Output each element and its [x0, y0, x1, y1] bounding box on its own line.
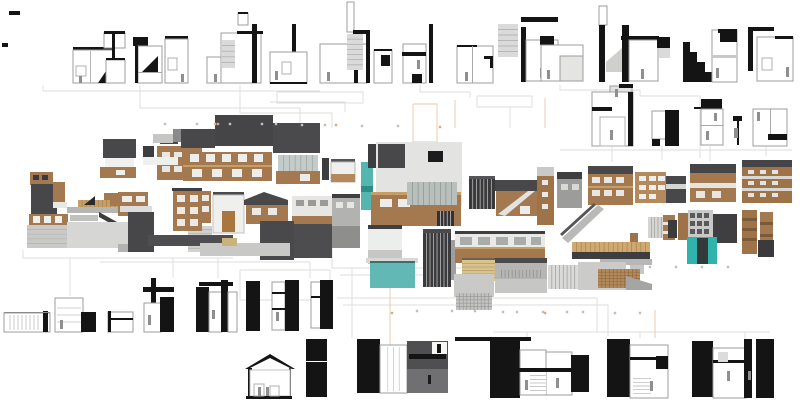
band-left-cluster — [27, 172, 69, 248]
right-row-section-04 — [733, 116, 742, 145]
right-row-section-02 — [652, 110, 679, 146]
band-center-small — [322, 158, 355, 182]
band-cl-right-building — [332, 194, 360, 248]
right-row-section-01 — [592, 84, 633, 146]
top-section-09 — [457, 45, 493, 83]
bottom-right-section — [692, 339, 774, 398]
band-center-tall — [273, 123, 320, 184]
band-right-row2 — [635, 172, 686, 203]
band-diagonal-stair — [560, 203, 604, 243]
top-section-06 — [270, 24, 307, 84]
band-right-row4 — [742, 160, 792, 203]
bottom-mid-section-01 — [357, 339, 448, 393]
band-pool-area — [366, 225, 418, 288]
bottom-left-section-01 — [4, 311, 50, 332]
band-lower-gray-2 — [495, 258, 547, 293]
right-row-section-05 — [753, 109, 787, 146]
band-right-c2 — [557, 172, 582, 208]
top-section-05 — [207, 12, 263, 83]
band-right-c1 — [495, 180, 542, 216]
band-right-row3 — [690, 164, 736, 202]
bottom-left-section-07 — [272, 280, 299, 331]
top-section-08 — [402, 24, 433, 83]
band-center-main-building — [368, 142, 462, 226]
band-louver-upper — [469, 176, 495, 209]
top-section-13 — [683, 29, 737, 82]
band-right-row1 — [588, 166, 633, 205]
top-section-03 — [133, 37, 162, 83]
band-lower-gray-1 — [454, 274, 494, 310]
top-section-11 — [540, 36, 583, 81]
bottom-left-section-06 — [246, 281, 260, 331]
bottom-left-section-04 — [143, 278, 174, 332]
band-lower-wood-band — [572, 242, 652, 265]
bottom-left-section-03 — [108, 311, 133, 332]
collage-canvas — [0, 0, 800, 403]
top-section-12 — [599, 6, 670, 82]
band-center-roofband — [173, 115, 273, 181]
bottom-gable-house — [245, 354, 295, 399]
top-section-14 — [748, 27, 793, 81]
bottom-mid-section-02 — [455, 337, 589, 398]
band-brick-tower — [537, 167, 554, 225]
top-section-04 — [165, 36, 188, 83]
bottom-mid-slab — [306, 339, 327, 397]
bottom-left-section-02 — [55, 298, 96, 332]
bottom-left-section-08 — [311, 280, 333, 329]
bottom-mid-section-03 — [607, 339, 668, 398]
architectural-sections-collage — [0, 0, 800, 403]
right-row-section-03 — [694, 99, 723, 145]
band-louver-lower — [423, 229, 456, 287]
top-left-marks — [2, 11, 20, 47]
top-section-07 — [320, 2, 392, 83]
bottom-left-section-05 — [196, 280, 237, 332]
